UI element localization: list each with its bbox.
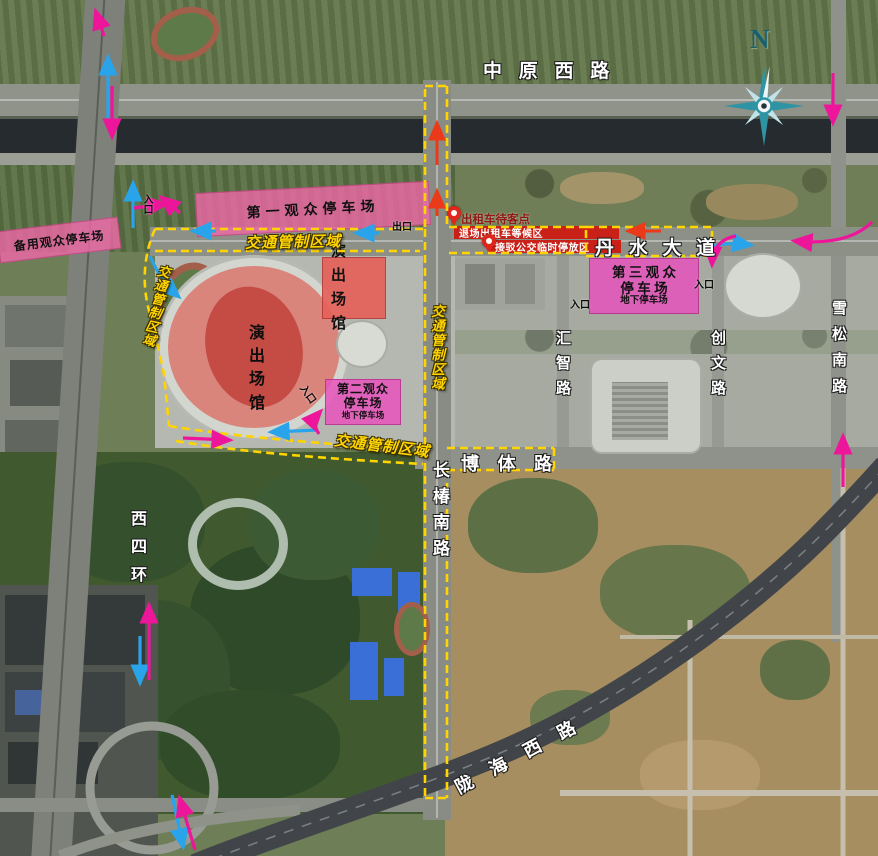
control-zone-text: 交通管制区域 — [245, 234, 341, 252]
road-label-xisihuan: 西四环 — [124, 510, 148, 594]
control-zone-label-west: 交通管制区域 — [245, 230, 341, 253]
compass-rose-icon — [712, 54, 816, 158]
road-label-xuesong: 雪松南路 — [828, 300, 849, 404]
compass: N — [712, 24, 816, 158]
event-traffic-map: 第一观众停车场 备用观众停车场 演 出 场 馆 第 三 观 众 停 车 场 地下… — [0, 0, 878, 856]
road-label-huizhi: 汇智路 — [552, 330, 573, 405]
road-label-changchun: 长椿南路 — [427, 461, 452, 565]
compass-north-label: N — [750, 24, 770, 55]
exit-label-first-parking: 出口 — [392, 218, 412, 233]
road-label-chuangwen: 创文路 — [707, 330, 728, 405]
road-text: 博 体 路 — [461, 454, 559, 474]
gate-text: 出口 — [392, 222, 412, 233]
gate-text: 入口 — [570, 300, 590, 311]
road-text: 汇智路 — [554, 330, 570, 405]
road-text: 创文路 — [709, 330, 725, 405]
entrance-label-third-west: 入口 — [570, 296, 590, 311]
road-label-boti: 博 体 路 — [461, 450, 559, 476]
road-text: 雪松南路 — [830, 300, 846, 404]
control-zone-text: 交通管制区域 — [429, 304, 444, 391]
gate-text: 入口 — [141, 194, 152, 214]
road-label-zhongyuan: 中 原 西 路 — [483, 56, 615, 83]
road-text: 中 原 西 路 — [483, 61, 615, 82]
gate-text: 入口 — [694, 280, 714, 291]
road-label-danshui: 丹 水 大 道 — [595, 233, 720, 260]
entrance-label-first-parking: 入口 — [139, 194, 154, 214]
road-text: 长椿南路 — [430, 461, 449, 565]
control-zone-label-right: 交通管制区域 — [426, 304, 446, 391]
road-text: 西四环 — [128, 510, 145, 594]
entrance-label-third-east: 入口 — [694, 276, 714, 291]
road-text: 丹 水 大 道 — [595, 238, 720, 259]
